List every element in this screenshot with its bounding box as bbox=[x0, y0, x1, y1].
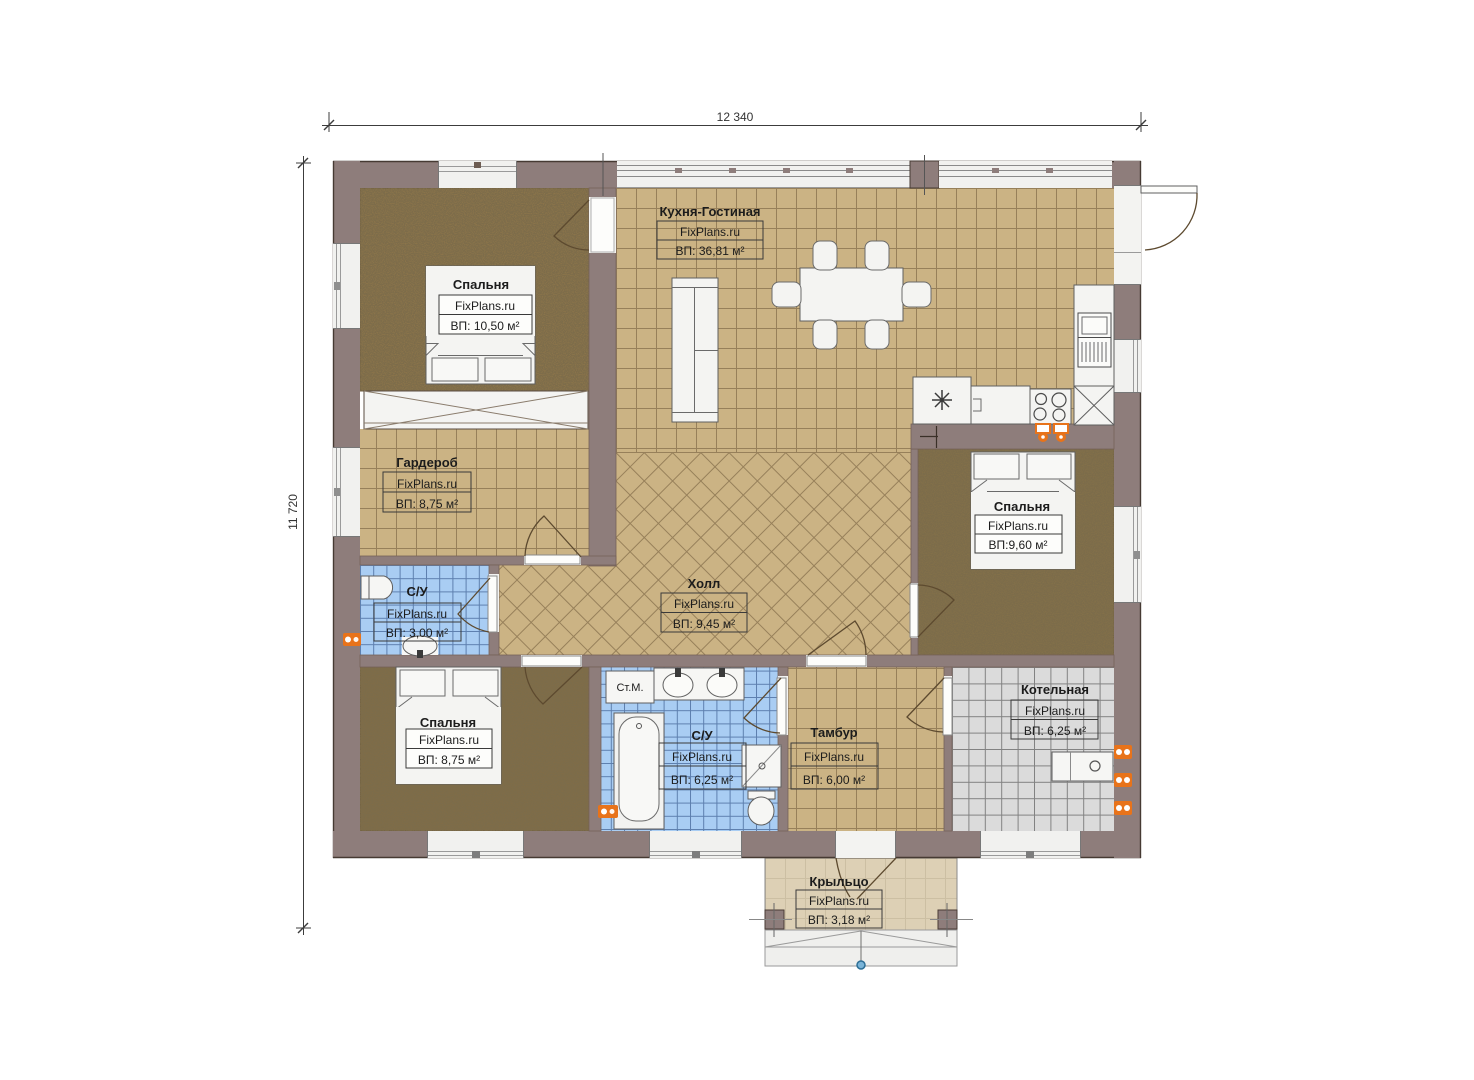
svg-text:FixPlans.ru: FixPlans.ru bbox=[387, 607, 447, 621]
svg-text:Спальня: Спальня bbox=[453, 277, 509, 292]
svg-text:Гардероб: Гардероб bbox=[396, 455, 457, 470]
svg-text:ВП: 10,50 м²: ВП: 10,50 м² bbox=[451, 319, 520, 333]
svg-text:Кухня-Гостиная: Кухня-Гостиная bbox=[659, 204, 760, 219]
svg-text:Ст.М.: Ст.М. bbox=[616, 682, 643, 694]
svg-text:FixPlans.ru: FixPlans.ru bbox=[1025, 704, 1085, 718]
svg-text:11 720: 11 720 bbox=[286, 494, 300, 530]
svg-text:ВП: 6,00 м²: ВП: 6,00 м² bbox=[803, 773, 865, 787]
svg-text:FixPlans.ru: FixPlans.ru bbox=[674, 597, 734, 611]
svg-text:FixPlans.ru: FixPlans.ru bbox=[419, 733, 479, 747]
svg-text:ВП: 9,45 м²: ВП: 9,45 м² bbox=[673, 617, 735, 631]
svg-text:ВП: 36,81 м²: ВП: 36,81 м² bbox=[676, 244, 745, 258]
svg-text:FixPlans.ru: FixPlans.ru bbox=[809, 894, 869, 908]
svg-text:Холл: Холл bbox=[688, 576, 721, 591]
svg-text:FixPlans.ru: FixPlans.ru bbox=[455, 299, 515, 313]
svg-text:Спальня: Спальня bbox=[994, 499, 1050, 514]
svg-text:ВП: 3,18 м²: ВП: 3,18 м² bbox=[808, 913, 870, 927]
svg-text:Котельная: Котельная bbox=[1021, 682, 1089, 697]
svg-text:FixPlans.ru: FixPlans.ru bbox=[680, 225, 740, 239]
svg-text:FixPlans.ru: FixPlans.ru bbox=[672, 750, 732, 764]
svg-text:12 340: 12 340 bbox=[717, 110, 754, 124]
svg-text:FixPlans.ru: FixPlans.ru bbox=[988, 519, 1048, 533]
svg-text:ВП: 6,25 м²: ВП: 6,25 м² bbox=[671, 773, 733, 787]
svg-text:FixPlans.ru: FixPlans.ru bbox=[397, 477, 457, 491]
svg-text:ВП: 8,75 м²: ВП: 8,75 м² bbox=[396, 497, 458, 511]
svg-text:С/У: С/У bbox=[691, 728, 713, 743]
svg-text:Тамбур: Тамбур bbox=[810, 725, 857, 740]
svg-text:С/У: С/У bbox=[406, 584, 428, 599]
svg-text:ВП: 6,25 м²: ВП: 6,25 м² bbox=[1024, 724, 1086, 738]
svg-text:FixPlans.ru: FixPlans.ru bbox=[804, 750, 864, 764]
svg-text:Крыльцо: Крыльцо bbox=[809, 874, 868, 889]
svg-text:ВП: 3,00 м²: ВП: 3,00 м² bbox=[386, 626, 448, 640]
svg-text:Спальня: Спальня bbox=[420, 715, 476, 730]
svg-text:ВП:9,60 м²: ВП:9,60 м² bbox=[989, 538, 1048, 552]
svg-text:ВП: 8,75 м²: ВП: 8,75 м² bbox=[418, 753, 480, 767]
